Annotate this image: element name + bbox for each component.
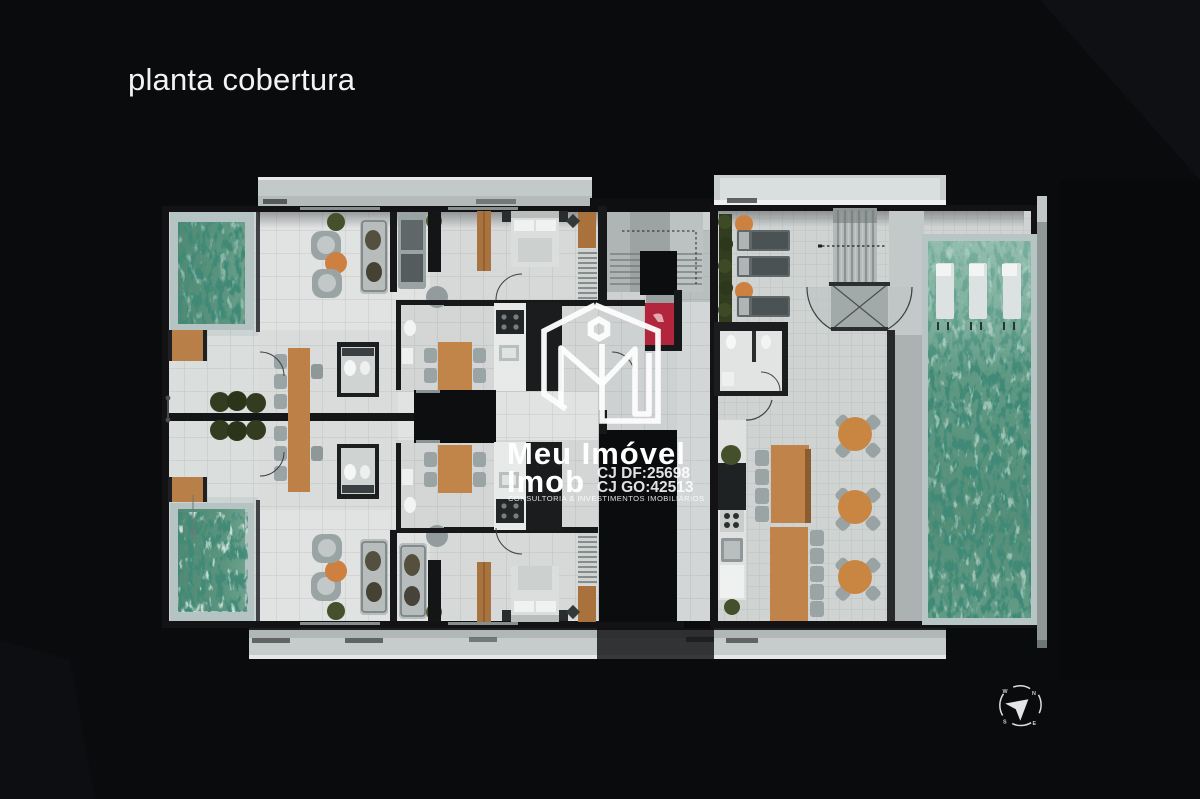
svg-text:S: S — [1003, 720, 1007, 726]
svg-text:E: E — [1033, 721, 1037, 727]
svg-text:N: N — [1032, 691, 1036, 697]
svg-text:CONSULTORIA & INVESTIMENTOS IM: CONSULTORIA & INVESTIMENTOS IMOBILIÁRIOS — [508, 494, 705, 503]
svg-text:W: W — [1003, 689, 1009, 695]
